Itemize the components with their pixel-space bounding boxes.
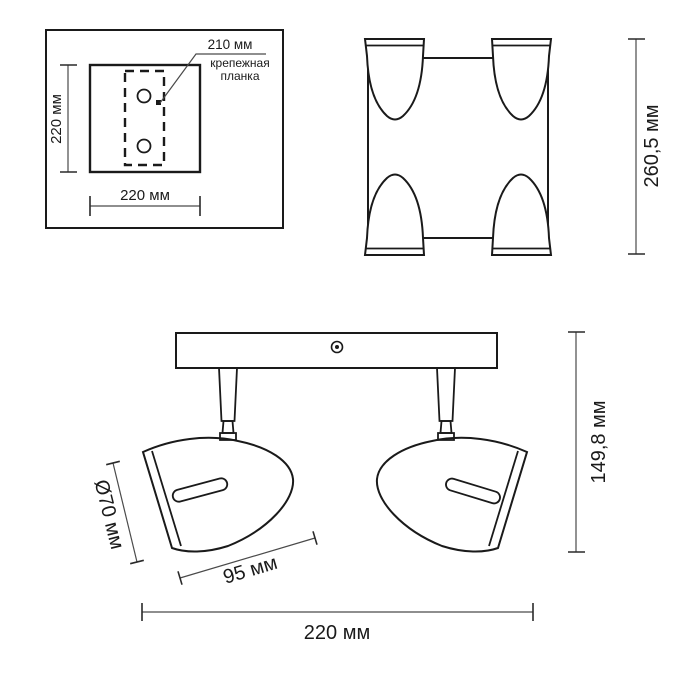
overall-height-label: 149,8 мм [588,400,610,483]
bracket-caption-line1: крепежная [210,56,269,70]
top-view: 260,5 мм [365,39,663,255]
plate-height-label: 220 мм [48,94,65,144]
shade-diameter-dimension: Ø70 мм [90,461,144,563]
bracket-caption-line2: планка [221,69,260,83]
base-length-dimension: 220 мм [142,603,533,644]
plate-height-dimension: 220 мм [48,65,77,172]
technical-drawing: 210 мм крепежная планка 220 мм 220 мм [0,0,700,700]
side-view: Ø70 мм 95 мм 149,8 мм 220 мм [90,332,610,644]
overall-depth-label: 260,5 мм [641,104,663,187]
overall-depth-dimension: 260,5 мм [628,39,663,254]
shade-diameter-label: Ø70 мм [90,478,128,552]
wall-plate-outline [90,65,200,172]
shade-top-left [365,39,424,120]
shade-bottom-right [492,175,551,256]
plate-width-label: 220 мм [120,187,170,204]
overall-height-dimension: 149,8 мм [568,332,610,552]
stem-right [437,368,455,440]
mounting-plate-detail-inset: 210 мм крепежная планка 220 мм 220 мм [46,30,283,228]
shade-bottom-left [365,175,424,256]
shade-top-right [492,39,551,120]
base-length-label: 220 мм [304,622,370,644]
mounting-bar-outline [176,333,497,368]
screw-icon [332,342,343,353]
bracket-width-label: 210 мм [208,37,253,52]
stem-left [219,368,237,440]
plate-width-dimension: 220 мм [90,187,200,216]
